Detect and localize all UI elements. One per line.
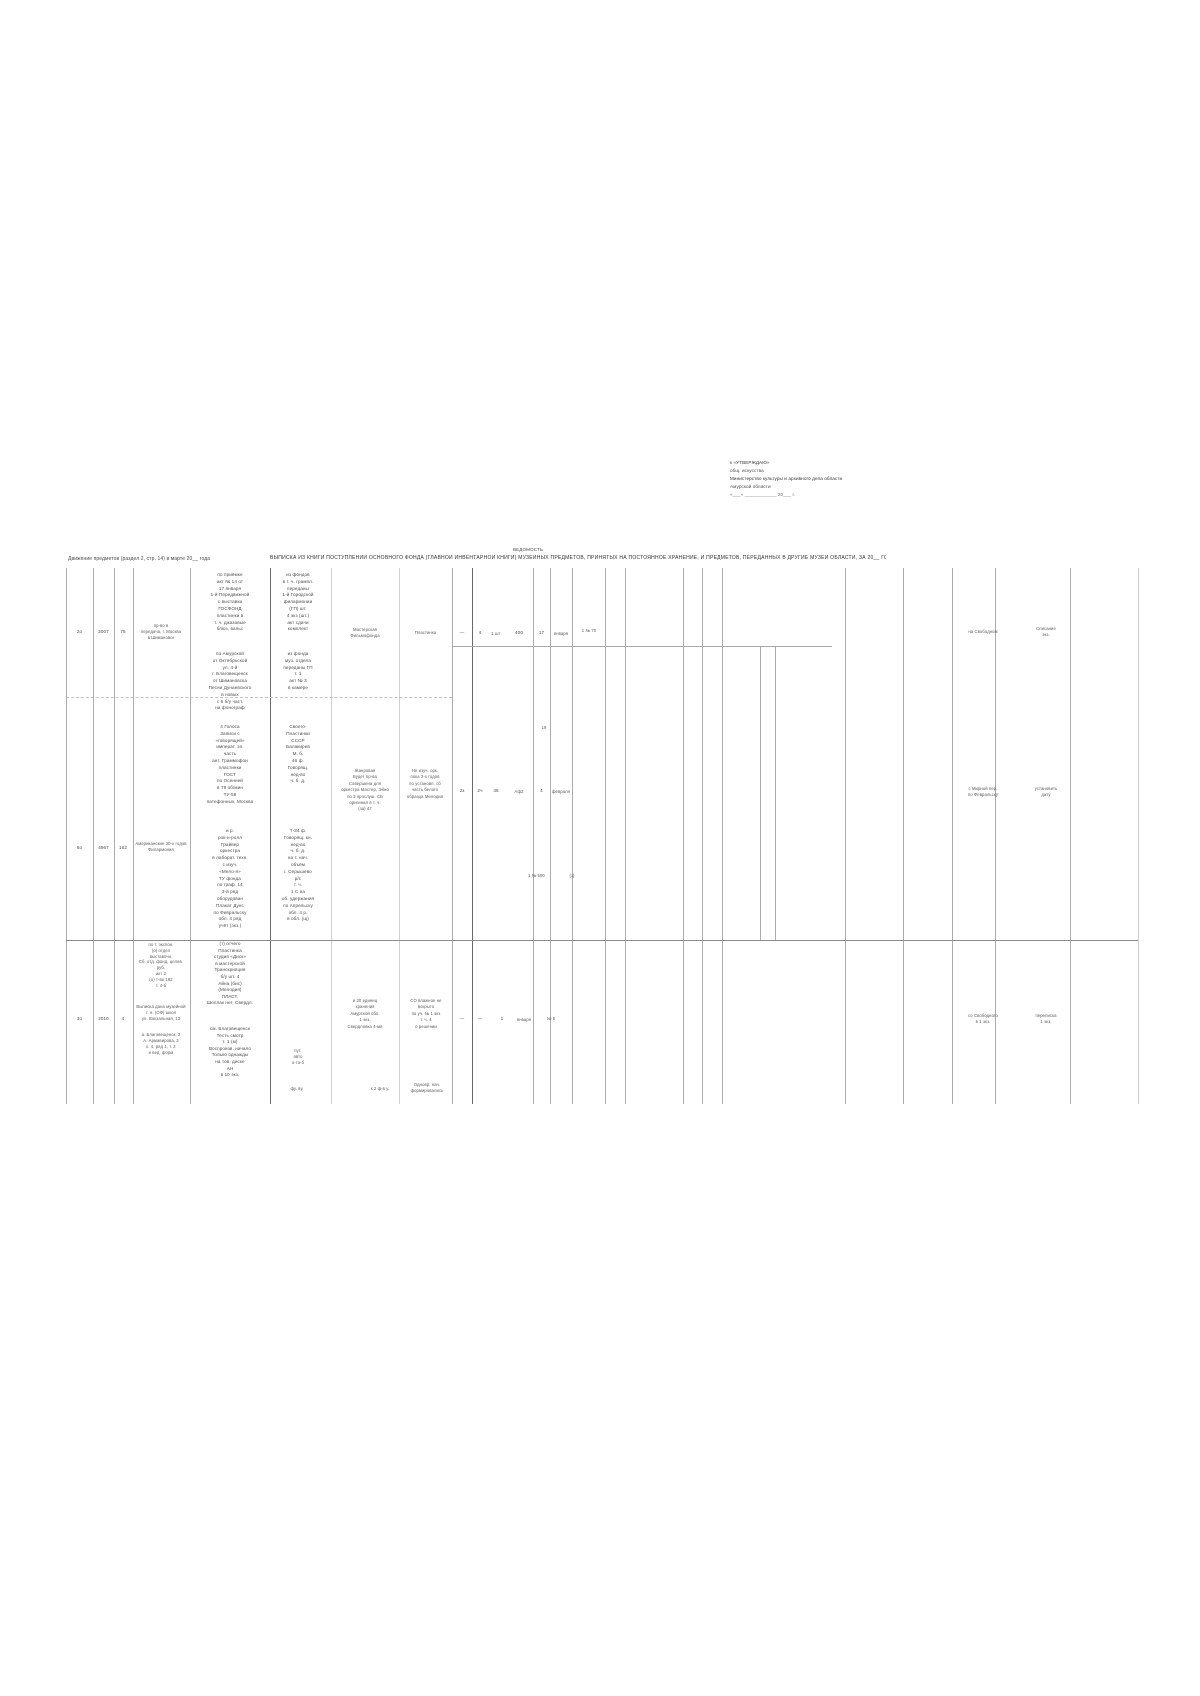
row1-cell-month: января	[550, 631, 572, 637]
row2-right-note2: установить дату	[1024, 786, 1068, 798]
approval-note-line5: «___» ____________ 20___ г.	[730, 491, 900, 499]
row3-object-type: СО влажное не вскрыто по уч. № 1 экз т. …	[401, 998, 451, 1030]
document-title: ВЫПИСКА ИЗ КНИГИ ПОСТУПЛЕНИЙ ОСНОВНОГО Ф…	[270, 555, 886, 562]
row3-entry-no: 3о	[67, 1016, 92, 1023]
row2-serial: 1 № 500	[528, 873, 562, 879]
row1-entry-num: 75	[115, 629, 131, 636]
row2-description-top: 4 Голоса Записи с «говорящей» императ. э…	[197, 724, 263, 806]
row1-right-note2: Списание экз.	[1024, 626, 1068, 638]
table-column-divider	[625, 568, 626, 1104]
row2-notes-top: Своего- Пластинки СССР Балакирев М. б. 4…	[271, 724, 325, 785]
row1-cell-day: 17	[534, 630, 549, 637]
table-column-divider	[683, 568, 684, 1104]
row2-notes-bottom: Т-34 ф. Говорящ. кн. нед-во ч. б. д. на …	[271, 828, 325, 923]
table-column-divider	[760, 646, 761, 940]
row3-cell-num: № 5	[542, 1016, 560, 1022]
table-column-divider	[114, 568, 115, 1104]
row3-workshop: и 20 единиц хранения Амурской обл. 1 экз…	[333, 998, 397, 1030]
row1-description-top: по приёмке акт № 14 от 17 января 1-й Пер…	[197, 572, 263, 633]
table-column-divider	[1138, 568, 1139, 1104]
row2-cell3: 46	[486, 788, 506, 795]
row2-workshop: Жанровая Будет пр-ва Совершена для оркес…	[332, 768, 398, 813]
row1-source: пр-во в передача, г. Москва в Шимановск	[133, 623, 189, 641]
table-column-divider	[845, 568, 846, 1104]
approval-note-line4: Амурской области	[730, 483, 900, 491]
row3-cell-month: января	[510, 1017, 538, 1023]
approval-note-line1: к «УТВЕРЖДАЮ»	[730, 459, 900, 467]
table-column-divider	[452, 568, 453, 1104]
row3-source-sub: а. Благовещенск, 2 А. Армавирова, 3 к. 4…	[133, 1032, 189, 1056]
row1-entry-no: 2о	[67, 629, 92, 636]
table-column-divider	[331, 568, 332, 1104]
row3-cell-dash1: —	[453, 1016, 471, 1023]
row1-workshop: Мастерская Фильмофонда	[333, 627, 397, 639]
row2-cell-month: февраля	[549, 789, 573, 795]
approval-note-line2: общ. искусства	[730, 467, 900, 475]
row3-entry-num: 4	[115, 1016, 131, 1023]
table-column-divider	[550, 568, 551, 1104]
document-kicker: ВЕДОМОСТЬ	[478, 547, 578, 554]
row2-cell2: 2ч	[473, 788, 487, 795]
row3-right-note: со Свободного в 1 экз.	[948, 1013, 1018, 1025]
row3-notes-foot: фу. ву.	[272, 1086, 322, 1092]
row1-cell-qty: 4	[473, 630, 487, 637]
row1-right-note: на Свободном	[948, 629, 1018, 635]
row3-source-main: Выписка дана музейной т. н. (ОФ) школ ул…	[131, 1004, 191, 1022]
row1-notes-top: из фондов в т. ч. грампл. переданы 1-й Г…	[271, 572, 325, 633]
row3-right-note2: переписка 1 экз.	[1024, 1013, 1068, 1025]
row2-description-bottom: и р. рок-н-ролл Грайвер оркестра в лабор…	[197, 828, 263, 930]
row2-mark: 19	[536, 725, 552, 731]
row3-object-foot: Одновр. нач. формировались	[401, 1082, 453, 1094]
row3-cell-qty: 1	[496, 1016, 508, 1023]
subtitle-left: Движение предметов (раздел 2, стр. 14) в…	[68, 556, 248, 563]
row1-cell-note: 1 № 70	[575, 628, 603, 634]
row2-serial-note: (з)	[564, 873, 580, 879]
table-column-divider	[702, 568, 703, 1104]
table-column-divider	[399, 568, 400, 1104]
row2-object-type: Не изуч. орк. пока 2-х годов по установл…	[400, 768, 450, 800]
row3-description: (т) отчего Пластинка студия «Диск» в мас…	[197, 941, 263, 1007]
table-column-divider	[572, 568, 573, 1104]
table-column-divider	[133, 568, 134, 1104]
table-column-divider	[472, 568, 473, 1104]
row3-cell-dash2: —	[473, 1016, 487, 1023]
row2-entry-no: 6о	[67, 845, 92, 852]
row2-cell4: Аф2	[508, 789, 530, 795]
table-column-divider	[903, 568, 904, 1104]
table-column-divider	[533, 568, 534, 1104]
row2-cell-day: 4	[534, 788, 549, 795]
row1-cell-unit: 1 шт	[486, 631, 506, 637]
row2-source: Американские 30-х годов Филармония	[133, 841, 189, 853]
table-column-divider	[605, 568, 606, 1104]
row2-cell1: 2з	[453, 788, 471, 795]
row3-workshop-foot: к 2 ф-в у.	[352, 1086, 408, 1092]
row3-notes-low: пут. авто о-та-б	[271, 1048, 325, 1066]
table-column-divider	[66, 568, 67, 1104]
row1-notes-bottom: из фонда муз. отдела переданы ГП т. 1 ак…	[271, 651, 325, 692]
row2-entry-num: 162	[115, 845, 131, 852]
row-divider-partial	[452, 646, 832, 647]
table-column-divider	[93, 568, 94, 1104]
row1-description-bottom: по Амурской от Октябрьской ул. 4-й г. Бл…	[197, 651, 263, 712]
table-column-divider	[775, 646, 776, 940]
row3-description-low: см. Благовещенск Тесть смотр т. 1 (м) Во…	[197, 1026, 263, 1079]
row2-entry-date: 4967	[94, 845, 113, 852]
scanned-document-page: к «УТВЕРЖДАЮ» общ. искусства Министерств…	[0, 0, 1200, 1696]
approval-note-line3: Министерство культуры и архивного дела о…	[730, 475, 900, 483]
row3-source-top: по т. экспон. (о) отдел выставочн. Сб. о…	[133, 942, 189, 988]
document-scan: к «УТВЕРЖДАЮ» общ. искусства Министерств…	[0, 0, 1200, 1696]
row2-right-note: с Мирной пер. по Февральску	[948, 786, 1018, 798]
row3-entry-date: 2010	[94, 1016, 113, 1023]
row1-cell-dash: —	[453, 630, 471, 637]
row1-cell-price: 400	[508, 630, 530, 637]
row1-entry-date: 2007	[94, 629, 113, 636]
row1-object-type: Пластинка	[401, 630, 450, 636]
table-column-divider	[1070, 568, 1071, 1104]
table-column-divider	[722, 568, 723, 1104]
table-column-divider	[190, 568, 191, 1104]
